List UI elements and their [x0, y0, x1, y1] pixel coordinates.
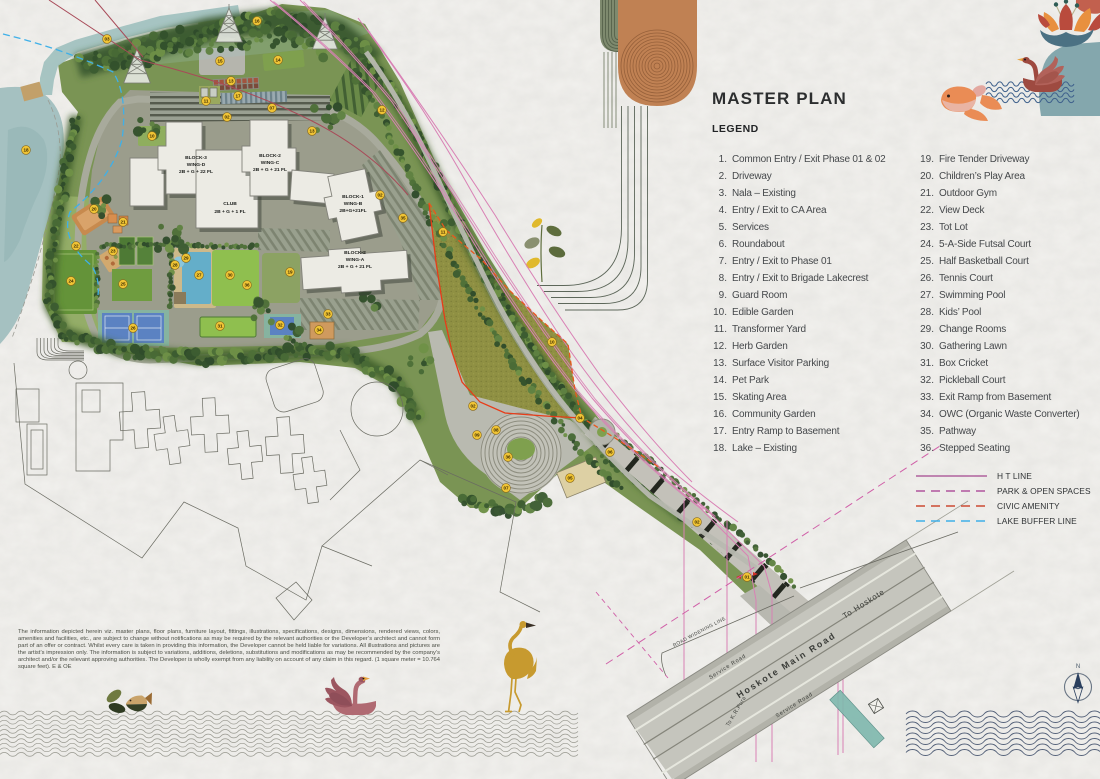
svg-text:02: 02	[470, 404, 476, 409]
svg-text:2B + G + 21 FL: 2B + G + 21 FL	[338, 264, 372, 270]
svg-text:2B + G + 21 FL: 2B + G + 21 FL	[253, 167, 287, 173]
svg-text:WING-D: WING-D	[187, 162, 206, 168]
svg-text:2B + G + 1 FL: 2B + G + 1 FL	[214, 209, 245, 215]
svg-text:BLOCK-2: BLOCK-2	[344, 250, 366, 256]
svg-text:14: 14	[275, 58, 281, 63]
svg-text:16: 16	[254, 19, 260, 24]
svg-text:24: 24	[68, 279, 74, 284]
svg-text:2B+G+21FL: 2B+G+21FL	[339, 208, 366, 214]
svg-text:BLOCK-2: BLOCK-2	[259, 153, 281, 159]
svg-text:13: 13	[309, 129, 315, 134]
svg-text:08: 08	[493, 428, 499, 433]
svg-text:WING-C: WING-C	[261, 160, 280, 166]
svg-text:WING-B: WING-B	[344, 201, 363, 207]
svg-text:31: 31	[217, 324, 223, 329]
svg-text:30: 30	[227, 273, 233, 278]
svg-text:04: 04	[577, 416, 583, 421]
svg-text:10: 10	[549, 340, 555, 345]
svg-text:11: 11	[204, 99, 209, 104]
svg-text:26: 26	[130, 326, 136, 331]
svg-text:12: 12	[379, 108, 385, 113]
svg-text:34: 34	[316, 328, 322, 333]
svg-text:06: 06	[607, 450, 613, 455]
svg-text:09: 09	[474, 433, 480, 438]
svg-text:CLUB: CLUB	[223, 201, 237, 207]
svg-text:BLOCK-1: BLOCK-1	[342, 194, 364, 200]
svg-text:32: 32	[277, 323, 283, 328]
svg-text:01: 01	[744, 575, 750, 580]
svg-text:02: 02	[224, 115, 230, 120]
svg-text:07: 07	[269, 106, 275, 111]
svg-text:27: 27	[196, 273, 202, 278]
svg-text:13: 13	[228, 79, 234, 84]
svg-text:N: N	[1076, 664, 1080, 670]
svg-text:2B + G + 22 FL: 2B + G + 22 FL	[179, 169, 213, 175]
svg-text:05: 05	[567, 476, 573, 481]
svg-text:WING-A: WING-A	[346, 257, 365, 263]
svg-text:20: 20	[91, 207, 97, 212]
svg-text:29: 29	[183, 256, 189, 261]
svg-text:36: 36	[505, 455, 511, 460]
svg-text:36: 36	[244, 283, 250, 288]
svg-text:07: 07	[503, 486, 509, 491]
svg-text:17: 17	[235, 94, 241, 99]
svg-text:28: 28	[172, 263, 178, 268]
svg-text:03: 03	[104, 37, 110, 42]
svg-text:11: 11	[441, 230, 446, 235]
svg-text:BLOCK-3: BLOCK-3	[185, 155, 207, 161]
svg-text:18: 18	[23, 148, 29, 153]
svg-text:21: 21	[120, 220, 126, 225]
svg-text:19: 19	[287, 270, 293, 275]
svg-text:33: 33	[325, 312, 331, 317]
svg-text:02: 02	[377, 193, 383, 198]
svg-text:22: 22	[73, 244, 79, 249]
svg-text:15: 15	[217, 59, 223, 64]
svg-text:35: 35	[400, 216, 406, 221]
svg-text:02: 02	[694, 520, 700, 525]
svg-text:10: 10	[149, 134, 155, 139]
svg-text:23: 23	[110, 249, 116, 254]
svg-text:25: 25	[120, 282, 126, 287]
